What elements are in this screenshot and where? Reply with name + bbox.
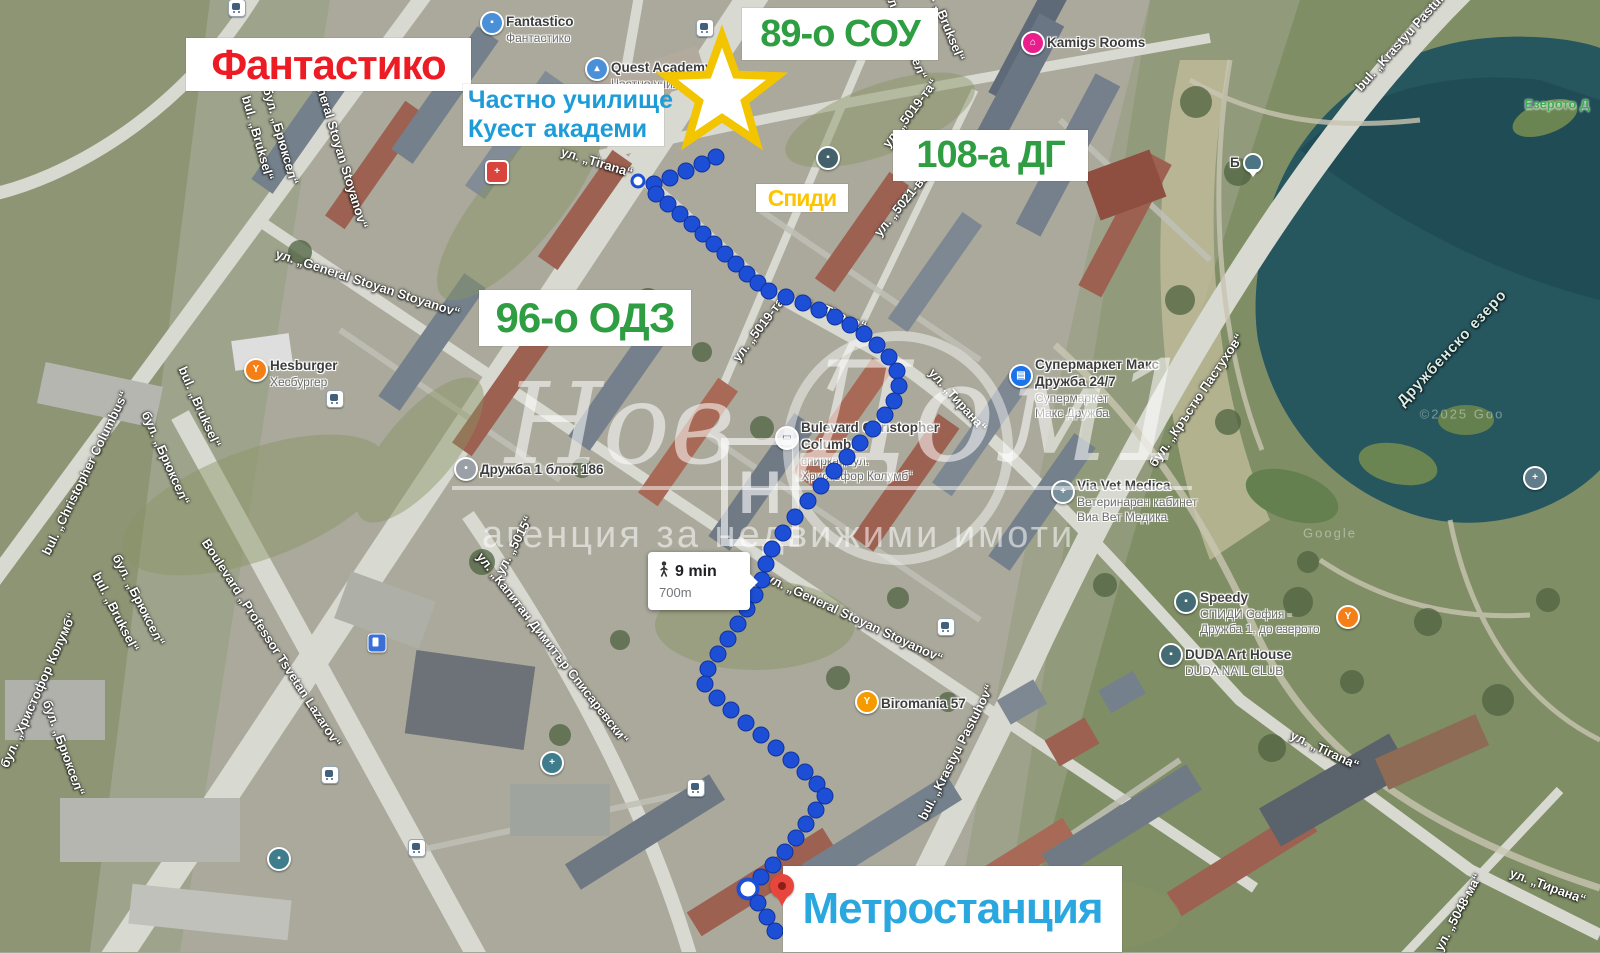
- poi-label-line: DUDA NAIL CLUB: [1185, 664, 1291, 679]
- gas-station-icon[interactable]: [368, 634, 387, 653]
- supermarket-maks-icon[interactable]: ▤: [1009, 364, 1033, 388]
- poi-label-line: Дружба 1 блок 186: [480, 462, 603, 479]
- route-dot: [710, 646, 727, 663]
- route-dot: [738, 715, 755, 732]
- annotation-kindergarten-96: 96-о ОДЗ: [479, 290, 691, 346]
- route-dot: [777, 844, 794, 861]
- pharmacy-nota-bene-icon[interactable]: +: [485, 160, 509, 184]
- speedy-druzhba-186-icon[interactable]: ▪: [816, 146, 840, 170]
- kamigs-rooms-label: Kamigs Rooms: [1047, 35, 1145, 52]
- route-dot: [768, 740, 785, 757]
- route-dot: [852, 435, 869, 452]
- hesburger-icon[interactable]: Y: [244, 358, 268, 382]
- poi-label-line: СПИДИ София -: [1200, 607, 1320, 622]
- bus-stop-icon[interactable]: [937, 618, 955, 636]
- poi-label-line: Дружба 1, до езерото: [1200, 622, 1320, 637]
- route-dot: [730, 616, 747, 633]
- route-dot: [787, 509, 804, 526]
- annotation-fantastiko: Фантастико: [186, 38, 471, 91]
- kamigs-rooms-icon[interactable]: ⌂: [1021, 31, 1045, 55]
- satellite-map: [0, 0, 1600, 952]
- via-vet-medica-label: Via Vet MedicaВетеринарен кабинетВиа Вет…: [1077, 478, 1197, 525]
- bus-stop-columbus-icon[interactable]: ▭: [775, 426, 799, 450]
- bus-stop-icon[interactable]: [321, 766, 339, 784]
- poi-label-line: Speedy: [1200, 590, 1320, 607]
- fantastico-store-label: FantasticoФантастико: [506, 14, 574, 46]
- route-dot: [877, 407, 894, 424]
- duda-art-house-label: DUDA Art HouseDUDA NAIL CLUB: [1185, 647, 1291, 679]
- route-dot: [758, 556, 775, 573]
- annotation-kindergarten-108: 108-а ДГ: [893, 130, 1088, 181]
- fantastico-store-icon[interactable]: ▪: [480, 11, 504, 35]
- route-dot: [800, 493, 817, 510]
- route-dot: [720, 631, 737, 648]
- annotation-speedy: Спиди: [756, 184, 848, 212]
- route-dot: [697, 676, 714, 693]
- poi-label-line: Via Vet Medica: [1077, 478, 1197, 495]
- route-dot: [708, 149, 725, 166]
- bus-stop-icon[interactable]: [696, 19, 714, 37]
- druzhba-blok-186-icon[interactable]: •: [454, 457, 478, 481]
- route-dot: [631, 174, 646, 189]
- annotation-metro-station: Метростанция: [783, 866, 1122, 952]
- supermarket-maks-label: Супермаркет МаксДружба 24/7СупермаркетМа…: [1035, 357, 1159, 421]
- route-dot: [678, 163, 695, 180]
- route-dot: [813, 478, 830, 495]
- poi-label-line: Kamigs Rooms: [1047, 35, 1145, 52]
- quest-academy-icon[interactable]: ▴: [585, 57, 609, 81]
- via-vet-medica-icon[interactable]: +: [1051, 480, 1075, 504]
- route-dot: [662, 170, 679, 187]
- route-dot: [778, 289, 795, 306]
- biromania-57-icon[interactable]: Y: [855, 690, 879, 714]
- pedestrian-icon: [658, 561, 670, 583]
- poi-label-line: Макс Дружба: [1035, 406, 1159, 421]
- poi-label-line: Biromania 57: [881, 696, 966, 713]
- annotation-quest-academy: Частно училище Куест академи: [463, 84, 664, 146]
- biromania-57-label: Biromania 57: [881, 696, 966, 713]
- poi-label-line: Супермаркет Макс: [1035, 357, 1159, 374]
- chapel-introduction-virgin-icon[interactable]: +: [1523, 466, 1547, 490]
- walk-distance: 700m: [648, 583, 750, 600]
- route-dot: [723, 702, 740, 719]
- lake-restaurant-icon[interactable]: Y: [1336, 605, 1360, 629]
- poi-label-line: Hesburger: [270, 358, 338, 375]
- speedy-do-ezeroto-icon[interactable]: ▪: [1174, 590, 1198, 614]
- route-dot: [795, 295, 812, 312]
- route-dot: [865, 421, 882, 438]
- poi-label-line: Fantastico: [506, 14, 574, 31]
- map-screenshot: бул. „Брюксел“bul. „Bruksel“bul. „Brukse…: [0, 0, 1600, 952]
- route-dot: [761, 283, 778, 300]
- route-dot: [811, 302, 828, 319]
- druzhba-blok-186-label: Дружба 1 блок 186: [480, 462, 603, 479]
- route-dot: [767, 923, 784, 940]
- poi-label-line: Ветеринарен кабинет: [1077, 495, 1197, 510]
- poi-label-line: Супермаркет: [1035, 391, 1159, 406]
- speedy-do-ezeroto-label: SpeedyСПИДИ София -Дружба 1, до езерото: [1200, 590, 1320, 637]
- route-dot: [753, 727, 770, 744]
- route-dot: [775, 525, 792, 542]
- route-dot: [826, 463, 843, 480]
- poi-label-line: DUDA Art House: [1185, 647, 1291, 664]
- duda-art-house-icon[interactable]: ▪: [1159, 643, 1183, 667]
- route-dot: [709, 690, 726, 707]
- poi-label-line: спирка „бул.: [801, 454, 939, 469]
- annotation-school-89: 89-о СОУ: [742, 8, 938, 60]
- smdl-ramus-icon[interactable]: +: [540, 751, 564, 775]
- stop-b-pin-icon[interactable]: [1243, 153, 1263, 173]
- poi-label-line: Дружба 24/7: [1035, 374, 1159, 391]
- route-dot: [839, 449, 856, 466]
- destination-pin-icon[interactable]: [770, 874, 794, 898]
- walk-duration: 9 min: [675, 563, 717, 581]
- poi-label-line: Quest Academy: [611, 60, 737, 77]
- bus-stop-icon[interactable]: [408, 839, 426, 857]
- annotation-quest-line1: Частно училище: [468, 86, 673, 115]
- poi-label-line: Фантастико: [506, 31, 574, 46]
- poi-label-line: Columbus: [801, 437, 939, 454]
- bus-stop-icon[interactable]: [687, 779, 705, 797]
- poi-label-line: Виа Вет Медика: [1077, 510, 1197, 525]
- walking-time-tooltip[interactable]: 9 min 700m: [648, 552, 750, 610]
- annotation-quest-line2: Куест академи: [468, 115, 647, 144]
- route-dot: [788, 830, 805, 847]
- poi-label-line: Хесбургер: [270, 375, 338, 390]
- bus-stop-icon[interactable]: [228, 0, 246, 17]
- stop-b-label: Б: [1230, 155, 1240, 170]
- route-dot: [783, 752, 800, 769]
- bus-stop-icon[interactable]: [326, 390, 344, 408]
- hesburger-label: HesburgerХесбургер: [270, 358, 338, 390]
- bosch-service-icon[interactable]: ▪: [267, 847, 291, 871]
